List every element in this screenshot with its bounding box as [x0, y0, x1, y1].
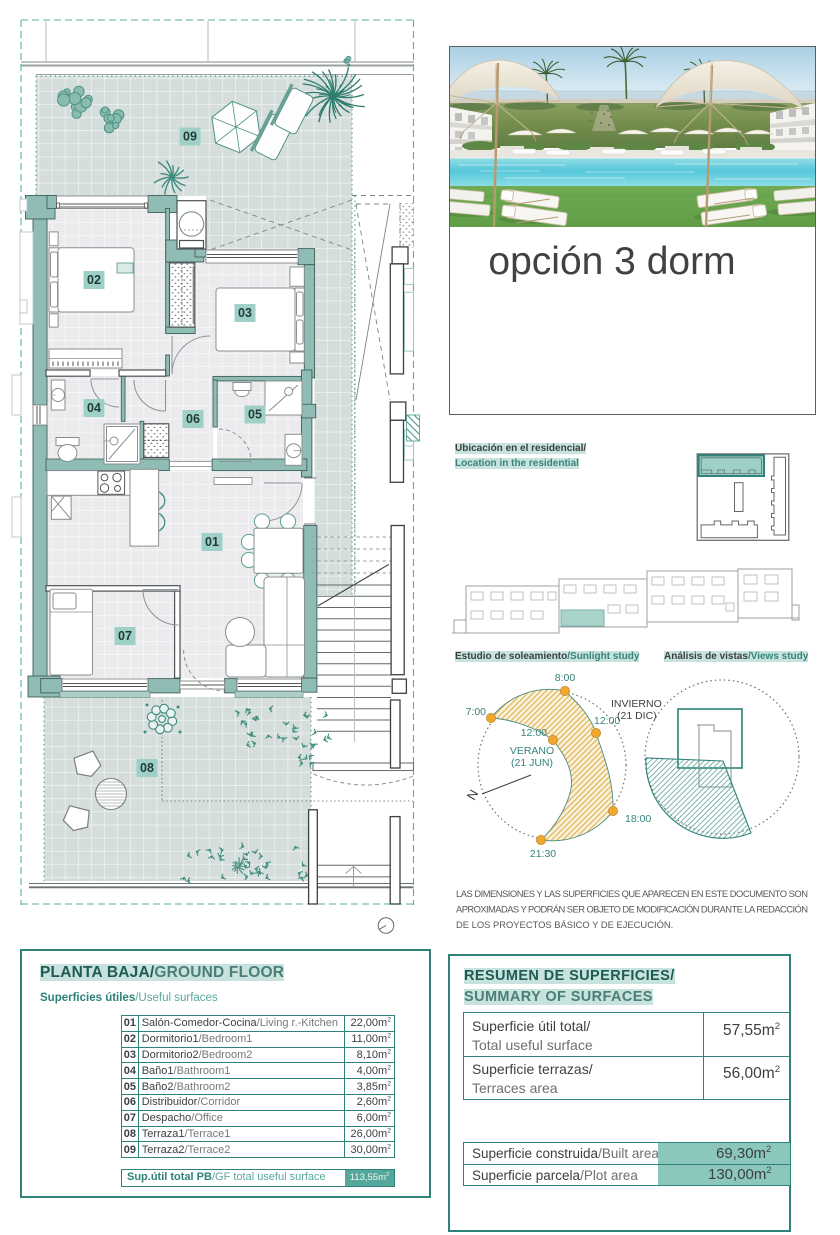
svg-text:LAS DIMENSIONES Y LAS SUPERFIC: LAS DIMENSIONES Y LAS SUPERFICIES QUE AP…: [456, 888, 808, 899]
svg-text:7:00: 7:00: [466, 706, 487, 718]
svg-text:01: 01: [205, 535, 219, 549]
svg-text:21:30: 21:30: [530, 848, 556, 860]
svg-text:05: 05: [248, 408, 262, 422]
svg-text:(21 JUN): (21 JUN): [511, 757, 553, 769]
svg-text:09: 09: [183, 130, 197, 144]
svg-text:8:00: 8:00: [555, 672, 576, 684]
svg-text:N: N: [464, 787, 482, 803]
svg-text:18:00: 18:00: [625, 813, 651, 825]
svg-text:08: 08: [140, 761, 154, 775]
svg-text:(21 DIC): (21 DIC): [617, 710, 657, 722]
svg-text:INVIERNO: INVIERNO: [611, 698, 662, 710]
svg-text:VERANO: VERANO: [510, 745, 554, 757]
svg-text:04: 04: [87, 401, 101, 415]
svg-text:12:00: 12:00: [521, 727, 547, 739]
svg-text:06: 06: [186, 412, 200, 426]
svg-text:07: 07: [118, 629, 132, 643]
svg-text:DE LOS PROYECTOS BÁSICO Y DE E: DE LOS PROYECTOS BÁSICO Y DE EJECUCIÓN.: [456, 919, 673, 930]
svg-text:03: 03: [238, 306, 252, 320]
svg-text:APROXIMADAS Y PODRÁN SER OBJET: APROXIMADAS Y PODRÁN SER OBJETO DE MODIF…: [456, 903, 808, 914]
svg-text:02: 02: [87, 273, 101, 287]
